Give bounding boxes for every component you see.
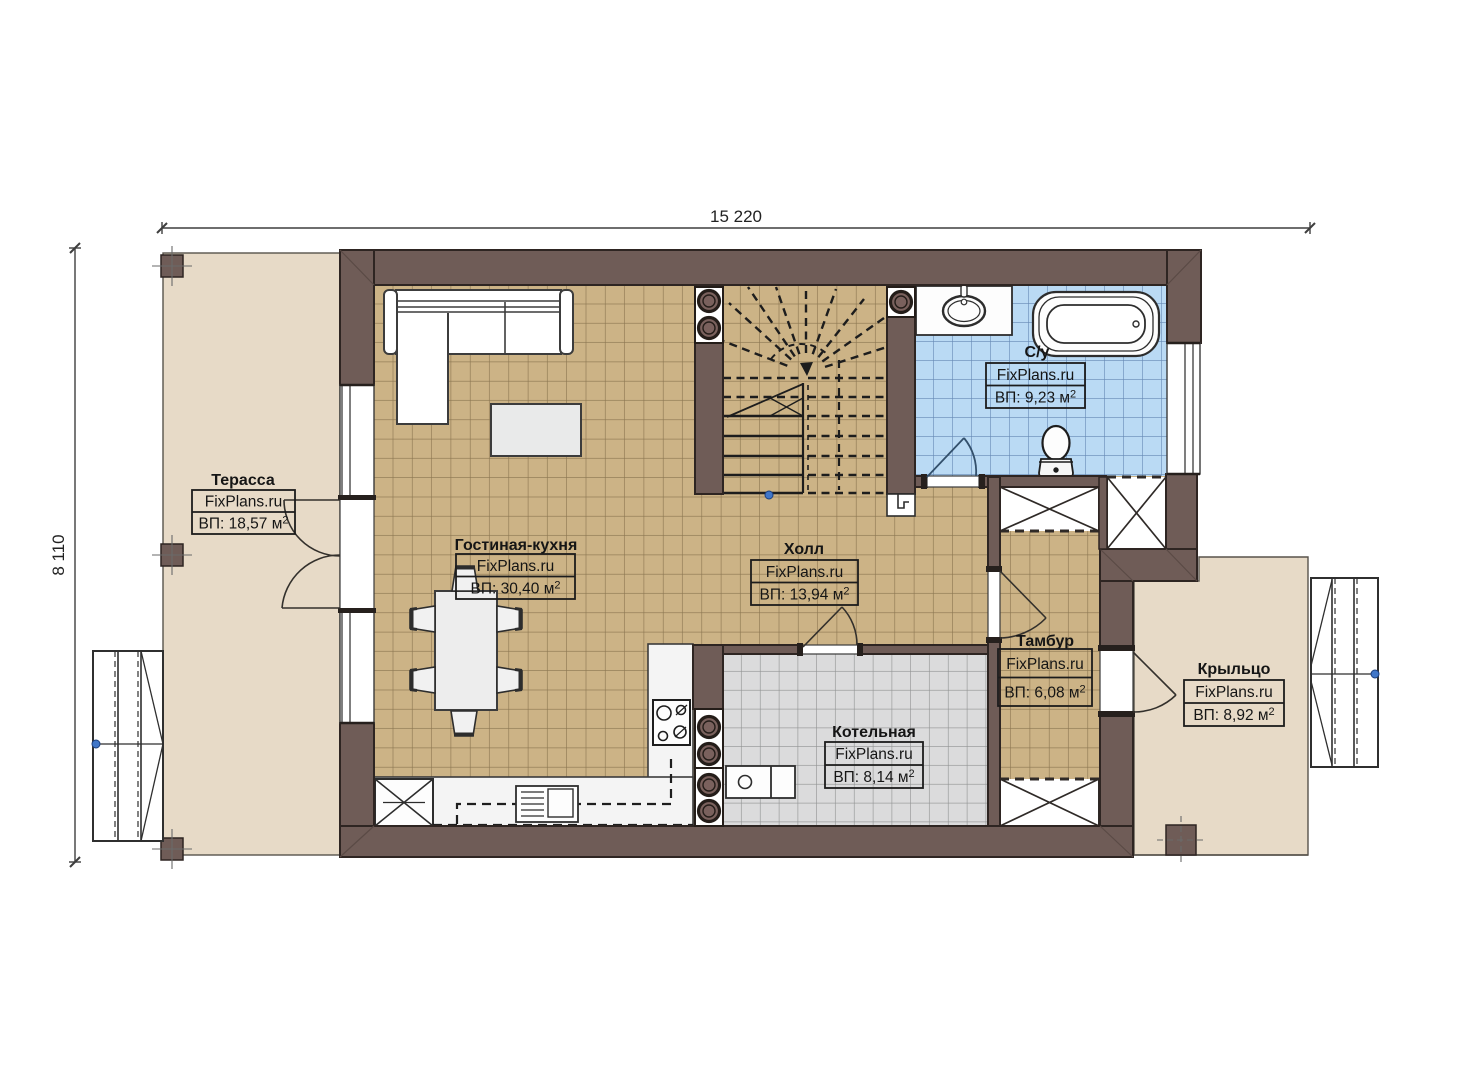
svg-text:Терасса: Терасса bbox=[211, 472, 275, 489]
svg-text:ВП: 13,94 м2: ВП: 13,94 м2 bbox=[760, 585, 850, 603]
svg-text:8 110: 8 110 bbox=[49, 534, 68, 575]
svg-text:ВП: 8,14 м2: ВП: 8,14 м2 bbox=[833, 768, 914, 786]
svg-text:Крыльцо: Крыльцо bbox=[1198, 661, 1271, 678]
svg-text:FixPlans.ru: FixPlans.ru bbox=[835, 746, 913, 763]
svg-text:FixPlans.ru: FixPlans.ru bbox=[766, 564, 844, 581]
svg-text:FixPlans.ru: FixPlans.ru bbox=[1006, 656, 1084, 673]
svg-text:FixPlans.ru: FixPlans.ru bbox=[997, 367, 1075, 384]
svg-text:ВП: 9,23 м2: ВП: 9,23 м2 bbox=[995, 388, 1076, 406]
svg-text:Гостиная-кухня: Гостиная-кухня bbox=[455, 537, 578, 554]
svg-text:15 220: 15 220 bbox=[710, 207, 762, 226]
svg-text:Тамбур: Тамбур bbox=[1016, 633, 1074, 650]
svg-text:FixPlans.ru: FixPlans.ru bbox=[1195, 684, 1273, 701]
svg-text:С/у: С/у bbox=[1025, 344, 1050, 361]
svg-text:Холл: Холл bbox=[784, 541, 824, 558]
svg-text:ВП: 6,08 м2: ВП: 6,08 м2 bbox=[1004, 683, 1085, 701]
svg-text:FixPlans.ru: FixPlans.ru bbox=[205, 494, 283, 511]
svg-text:ВП: 8,92 м2: ВП: 8,92 м2 bbox=[1193, 706, 1274, 724]
svg-text:ВП: 30,40 м2: ВП: 30,40 м2 bbox=[471, 579, 561, 597]
svg-text:ВП: 18,57 м2: ВП: 18,57 м2 bbox=[199, 515, 289, 533]
svg-text:FixPlans.ru: FixPlans.ru bbox=[477, 558, 555, 575]
svg-text:Котельная: Котельная bbox=[832, 724, 916, 741]
